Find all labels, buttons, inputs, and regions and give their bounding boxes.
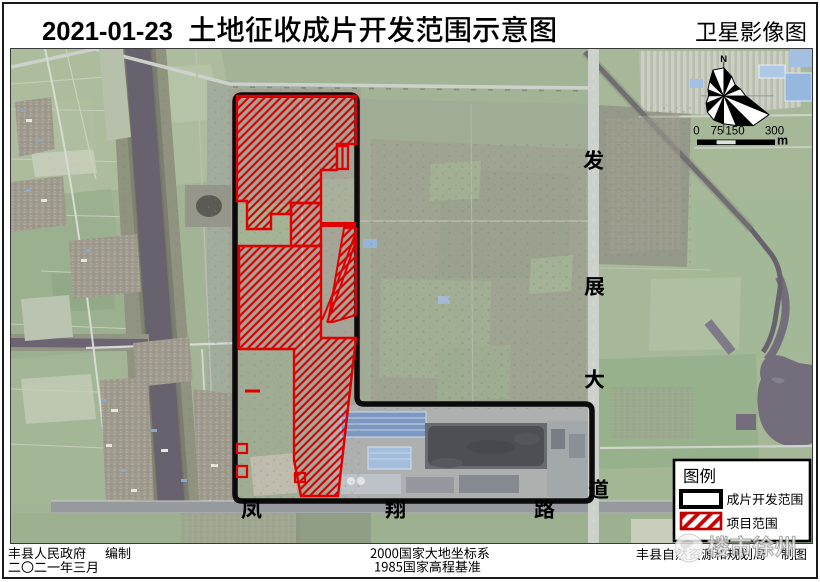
svg-text:0: 0 — [693, 126, 699, 138]
svg-text:150: 150 — [725, 126, 744, 138]
svg-text:2021-01-23: 2021-01-23 — [42, 18, 173, 46]
svg-text:75: 75 — [711, 126, 724, 138]
svg-text:N: N — [720, 54, 727, 65]
svg-text:m: m — [777, 134, 788, 148]
